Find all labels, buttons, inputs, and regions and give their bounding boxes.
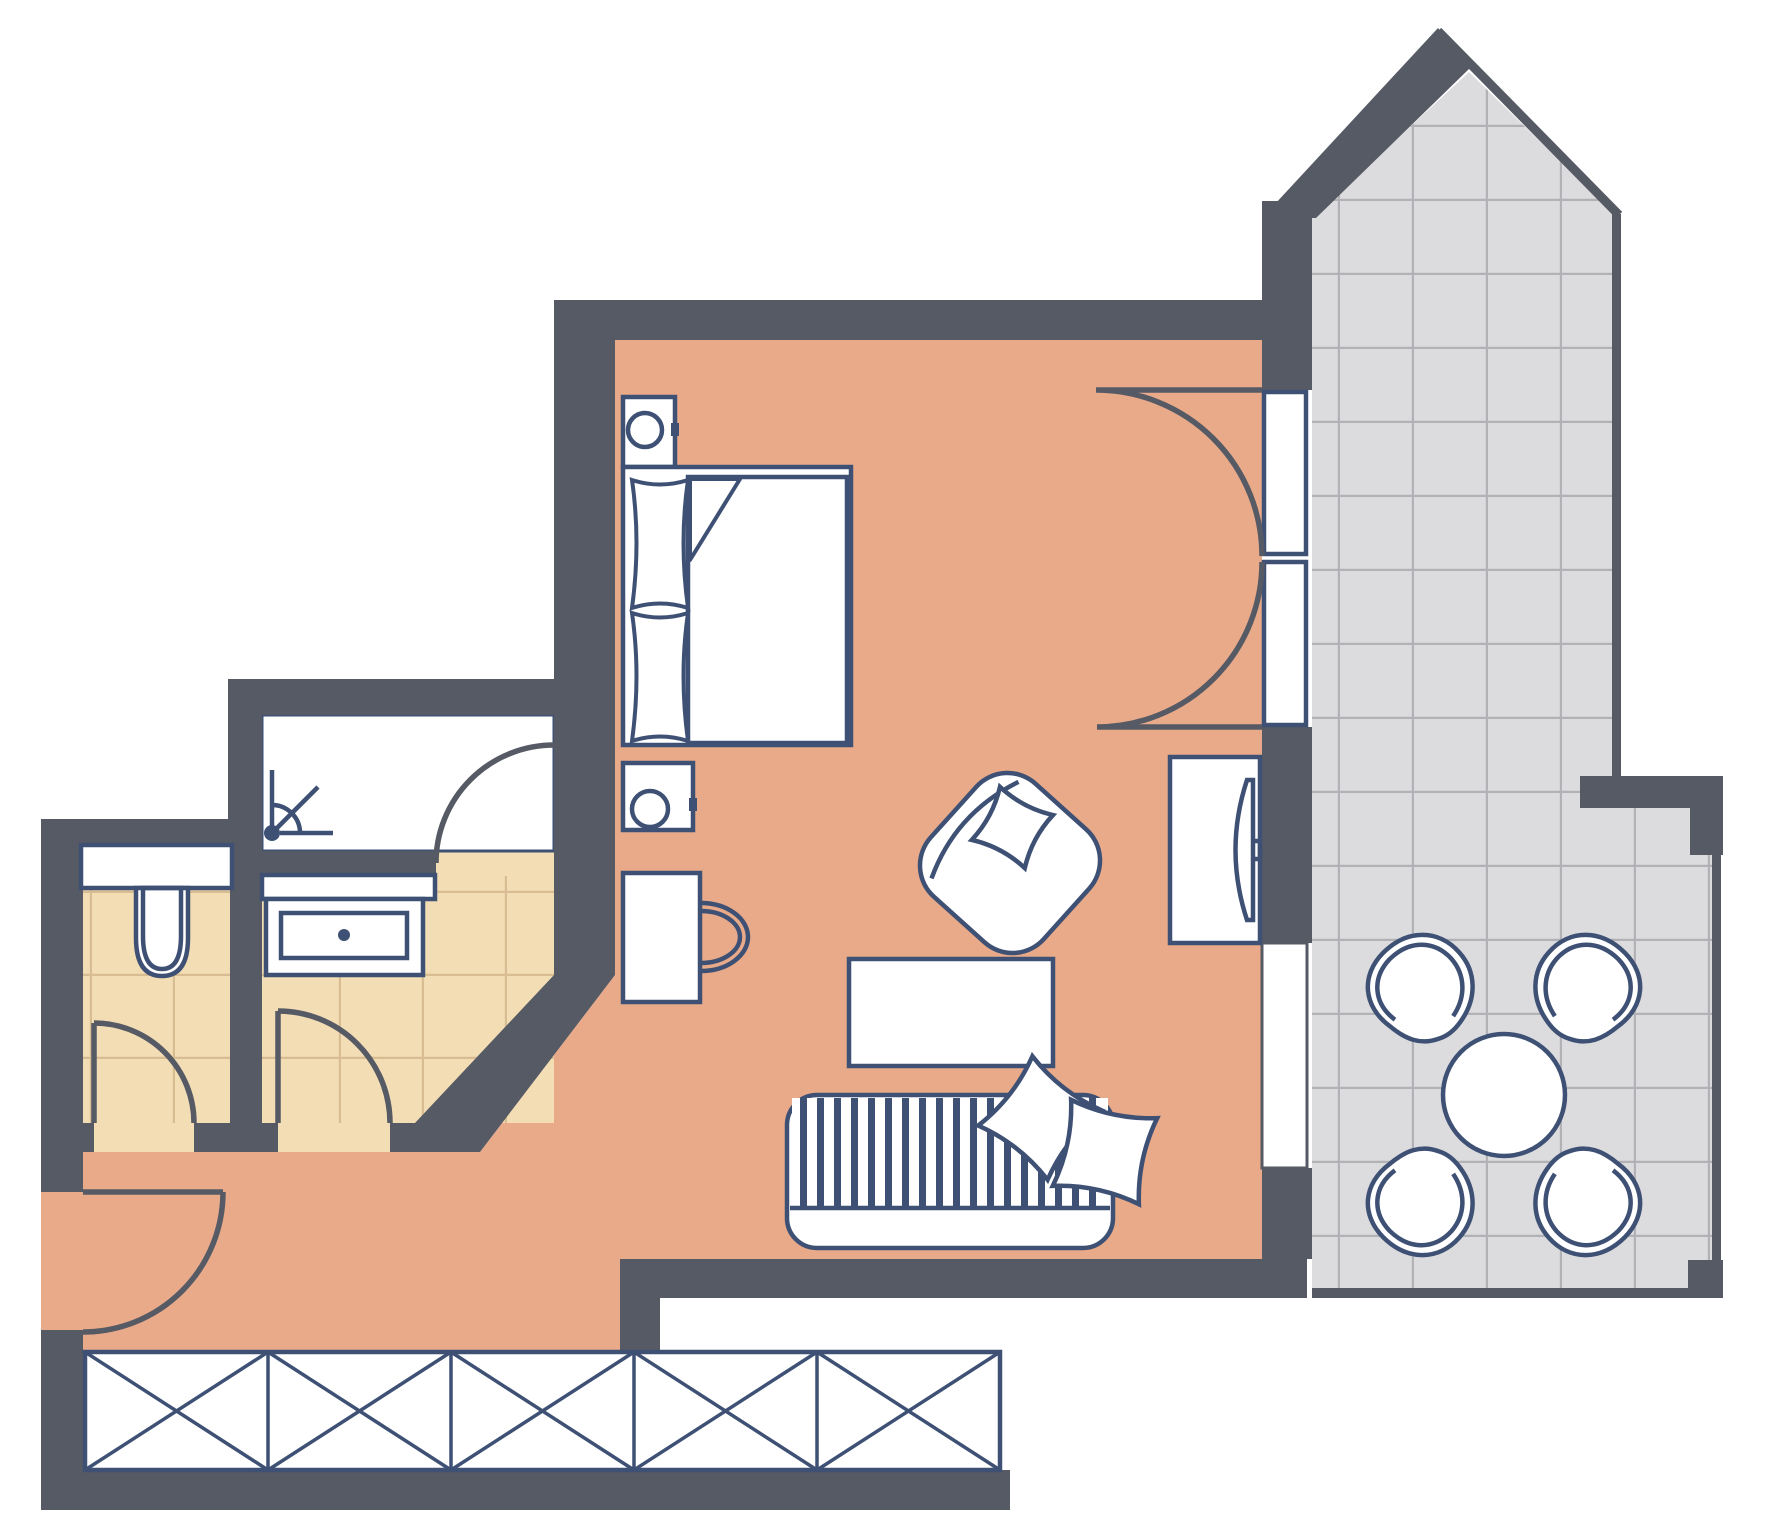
balcony-step-wall [1580,776,1723,808]
bathroom-door-threshold [278,1123,390,1152]
wall-living-top [554,300,1262,340]
balcony-table [1443,1034,1565,1156]
balcony-railing-right-upper [1612,214,1621,776]
wall-living-bottom-cap [620,1298,660,1352]
balcony-corner-block [1688,1260,1723,1298]
balcony-door-leaf-top [1264,392,1306,554]
wc-door-threshold [94,1123,194,1152]
wall-living-left [554,300,615,679]
balcony-step-stub [1690,808,1723,855]
wall-outer-bottom [41,1470,1010,1510]
balcony-railing-bottom [1312,1288,1690,1298]
balcony-window [1262,943,1307,1168]
desk [623,873,700,1002]
wall-desk [554,715,615,975]
shower-door-threshold [436,851,554,876]
wall-shower-top [228,679,615,715]
nightstand-head [623,397,679,467]
balcony-door-leaf-bottom [1264,562,1306,725]
vanity-washbasin [262,875,435,975]
entry-threshold [41,1192,83,1330]
floor-plan [0,0,1772,1514]
wall-wc-bath [230,819,262,1152]
balcony-railing-right-lower [1712,855,1721,1268]
coffee-table [849,959,1053,1066]
nightstand-foot [623,763,697,830]
double-bed [623,467,851,745]
wall-living-bottom [620,1259,1307,1298]
shower-room-floor [262,715,554,851]
built-in-wardrobe [85,1352,1000,1470]
tv-sideboard [1170,757,1260,943]
